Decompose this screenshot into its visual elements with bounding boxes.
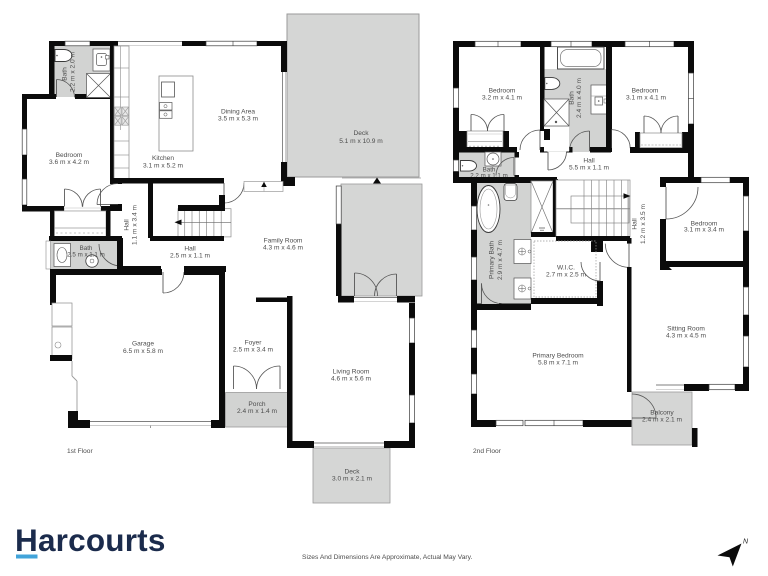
- svg-text:Bath: Bath: [62, 67, 69, 81]
- svg-text:3.0 m x 2.1 m: 3.0 m x 2.1 m: [332, 476, 372, 483]
- svg-text:5.8 m x 7.1 m: 5.8 m x 7.1 m: [538, 360, 578, 367]
- svg-text:Porch: Porch: [248, 401, 266, 408]
- svg-text:2.4 m x 4.0 m: 2.4 m x 4.0 m: [576, 78, 583, 118]
- svg-text:Primary Bedroom: Primary Bedroom: [532, 353, 584, 360]
- svg-text:Family Room: Family Room: [264, 238, 303, 245]
- svg-text:2.5 m x 3.4 m: 2.5 m x 3.4 m: [233, 347, 273, 354]
- svg-text:Sizes And Dimensions Are Appro: Sizes And Dimensions Are Approximate, Ac…: [302, 554, 472, 561]
- svg-text:Hall: Hall: [184, 246, 196, 253]
- svg-text:3.6 m x 4.2 m: 3.6 m x 4.2 m: [49, 159, 89, 166]
- svg-text:Primary Bath: Primary Bath: [489, 241, 496, 279]
- svg-text:2nd Floor: 2nd Floor: [473, 448, 502, 455]
- svg-text:Bath: Bath: [569, 91, 576, 105]
- svg-text:Dining Area: Dining Area: [221, 109, 255, 116]
- svg-text:2.4 m x 2.1 m: 2.4 m x 2.1 m: [642, 417, 682, 424]
- svg-text:3.1 m x 5.2 m: 3.1 m x 5.2 m: [143, 162, 183, 169]
- svg-text:Sitting Room: Sitting Room: [667, 326, 705, 333]
- svg-text:2.9 m x 4.7 m: 2.9 m x 4.7 m: [497, 240, 504, 280]
- svg-text:Harcourts: Harcourts: [15, 522, 166, 558]
- svg-text:3.5 m x 5.3 m: 3.5 m x 5.3 m: [218, 116, 258, 123]
- svg-text:3.1 m x 4.1 m: 3.1 m x 4.1 m: [626, 95, 666, 102]
- svg-text:Foyer: Foyer: [245, 340, 263, 347]
- svg-text:Garage: Garage: [132, 341, 154, 348]
- svg-text:4.6 m x 5.6 m: 4.6 m x 5.6 m: [331, 376, 371, 383]
- svg-text:4.3 m x 4.5 m: 4.3 m x 4.5 m: [666, 333, 706, 340]
- svg-text:5.1 m x 10.9 m: 5.1 m x 10.9 m: [339, 138, 383, 145]
- svg-text:4.3 m x 4.6 m: 4.3 m x 4.6 m: [263, 245, 303, 252]
- svg-text:6.5 m x 5.8 m: 6.5 m x 5.8 m: [123, 348, 163, 355]
- svg-text:Hall: Hall: [583, 158, 595, 165]
- svg-text:Bedroom: Bedroom: [56, 152, 83, 159]
- svg-text:3.1 m x 3.4 m: 3.1 m x 3.4 m: [684, 227, 724, 234]
- svg-text:2.4 m x 1.4 m: 2.4 m x 1.4 m: [237, 408, 277, 415]
- svg-text:1.2 m x 3.5 m: 1.2 m x 3.5 m: [640, 204, 647, 244]
- svg-text:1.1 m x 3.4 m: 1.1 m x 3.4 m: [132, 205, 139, 245]
- svg-text:Hall: Hall: [632, 218, 639, 230]
- svg-text:1st Floor: 1st Floor: [67, 448, 93, 455]
- svg-text:2.7 m x 2.5 m: 2.7 m x 2.5 m: [546, 272, 586, 279]
- svg-text:5.5 m x 1.1 m: 5.5 m x 1.1 m: [569, 165, 609, 172]
- svg-text:Bedroom: Bedroom: [632, 88, 659, 95]
- svg-text:Kitchen: Kitchen: [152, 155, 174, 162]
- svg-text:Deck: Deck: [344, 469, 360, 476]
- svg-text:2.2 m x 2.0 m: 2.2 m x 2.0 m: [70, 52, 77, 92]
- svg-text:3.2 m x 4.1 m: 3.2 m x 4.1 m: [482, 95, 522, 102]
- svg-text:Deck: Deck: [353, 130, 369, 137]
- svg-text:Balcony: Balcony: [650, 410, 674, 417]
- svg-text:2.5 m x 1.1 m: 2.5 m x 1.1 m: [170, 253, 210, 260]
- svg-text:Living Room: Living Room: [333, 369, 370, 376]
- svg-text:Hall: Hall: [124, 219, 131, 231]
- svg-text:2.5 m x 1.1 m: 2.5 m x 1.1 m: [67, 252, 104, 259]
- svg-text:Bedroom: Bedroom: [489, 88, 516, 95]
- svg-text:W.I.C.: W.I.C.: [557, 265, 575, 272]
